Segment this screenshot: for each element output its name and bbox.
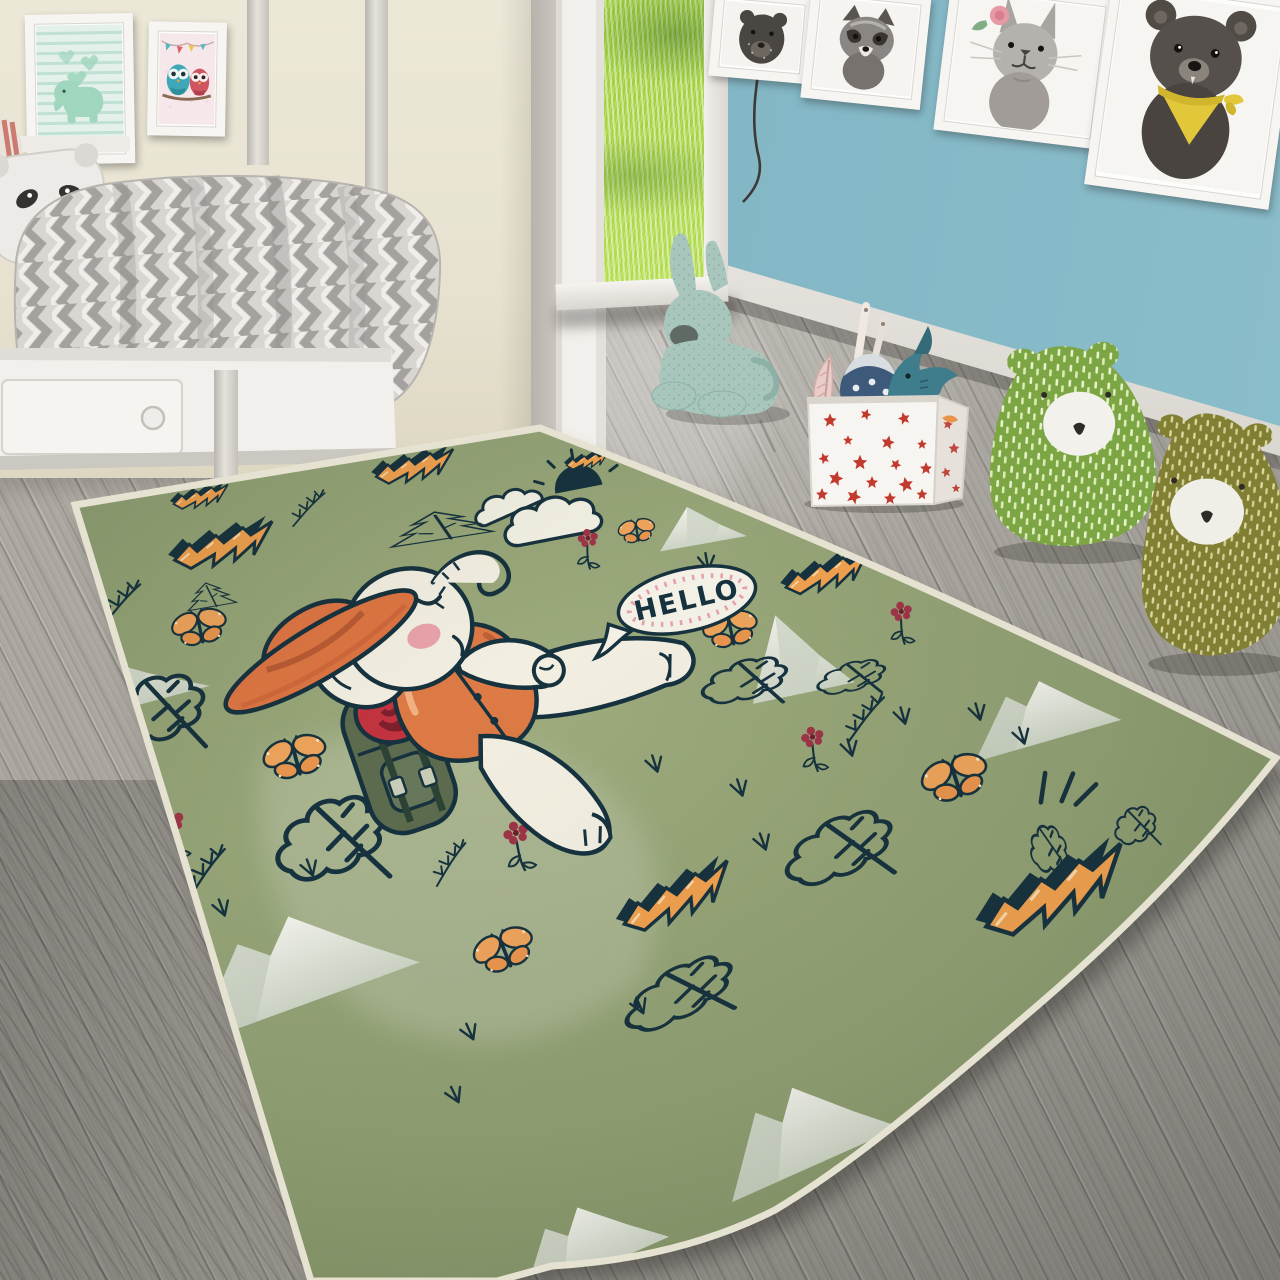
- grass-tuft: [118, 861, 139, 882]
- room-photo: HELLO: [0, 0, 1280, 1280]
- lightning-bolt: [0, 558, 46, 597]
- grass-tuft: [1204, 894, 1226, 916]
- tree: [55, 751, 120, 810]
- flower: [34, 597, 74, 653]
- elephant-area-rug: HELLO: [0, 0, 1280, 1280]
